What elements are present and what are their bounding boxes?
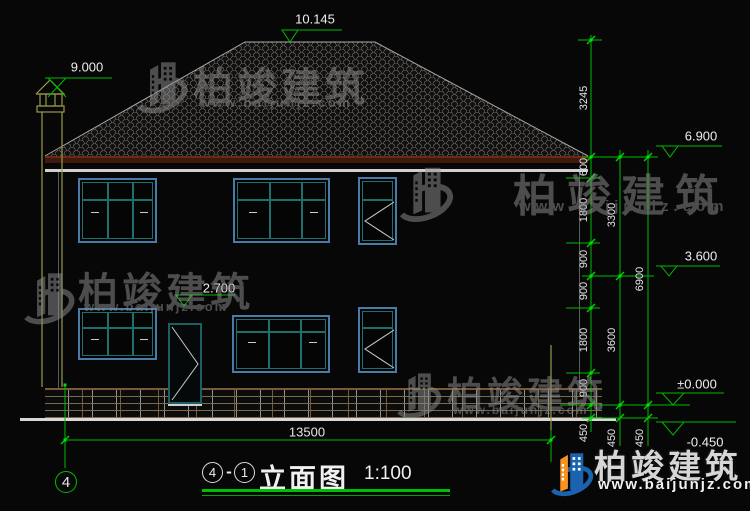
watermark-url: www.baijunjz.com (200, 95, 352, 110)
brand-url: www.baijunjz.com (598, 476, 750, 493)
watermark-logo-icon (133, 55, 189, 119)
brand-logo-icon (548, 442, 594, 506)
watermark-url: www.baijunjz.com (519, 198, 728, 215)
view-scale: 1:100 (364, 463, 412, 485)
dim-label: 900 (578, 250, 590, 268)
elevation-drawing-canvas: 9.000 10.145 6.900 3.600 2.700 ±0.000 -0… (0, 0, 750, 511)
watermark-logo-icon (20, 266, 76, 330)
axis-bubble-label: 4 (62, 474, 70, 491)
dim-overall-width-label: 13500 (289, 425, 325, 440)
title-axis-end-bubble: 1 (234, 462, 255, 483)
dim-label: 3245 (578, 86, 590, 110)
title-separator: - (226, 462, 232, 482)
dim-label: 1800 (578, 328, 590, 352)
title-underline-thick (202, 489, 450, 492)
dim-label: 450 (578, 424, 590, 442)
axis-bubble-4: 4 (55, 471, 77, 493)
watermark-url: www.baijunjz.com (453, 403, 589, 417)
dim-label: 3600 (606, 328, 618, 352)
title-axis-start-bubble: 4 (202, 462, 223, 483)
title-underline-thin (202, 495, 450, 496)
title-axis-start: 4 (209, 465, 216, 480)
watermark-logo-icon (393, 367, 443, 423)
chimney (36, 80, 64, 387)
elevation-ground-label: ±0.000 (677, 377, 717, 392)
dim-label: 900 (578, 282, 590, 300)
elevation-floor2-label: 3.600 (685, 249, 718, 264)
watermark-url: www.baijunjz.com (84, 299, 228, 314)
elevation-ridge-label: 10.145 (295, 12, 335, 27)
elevation-chimney-label: 9.000 (71, 60, 104, 75)
title-axis-end: 1 (241, 465, 248, 480)
elevation-eave-label: 6.900 (685, 129, 718, 144)
watermark-logo-icon (395, 160, 455, 228)
dim-label: 6900 (634, 267, 646, 291)
